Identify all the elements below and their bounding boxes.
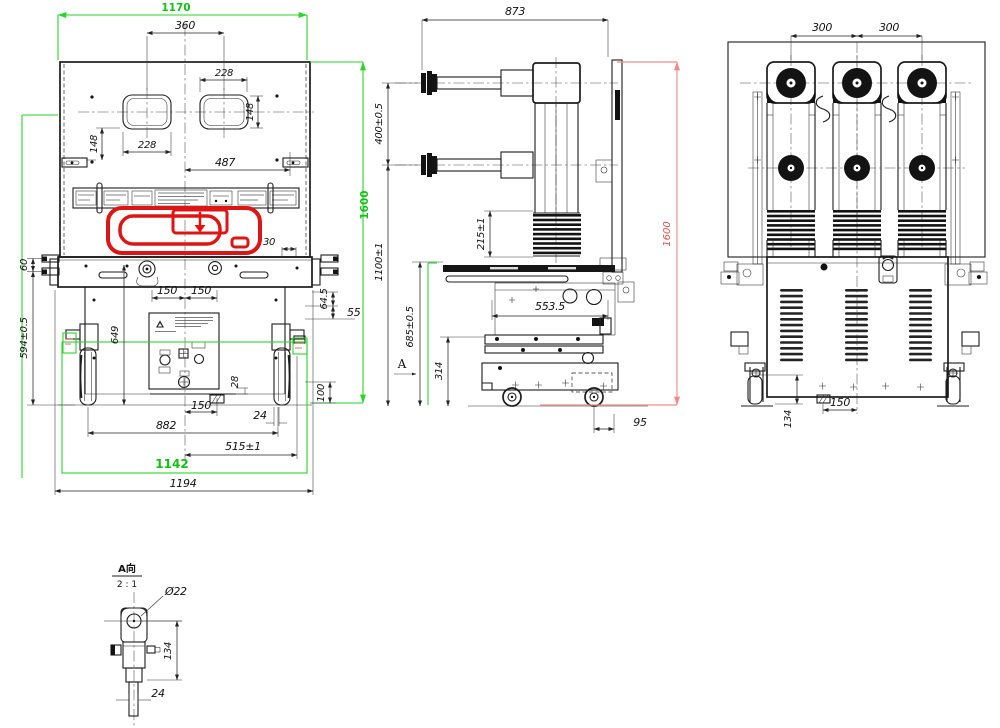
detail-title: A向 [118, 562, 136, 575]
dim-front-228-top: 228 [215, 68, 233, 79]
panel-handle-left [62, 158, 87, 167]
view-a-arrow-label: A [397, 357, 407, 371]
dim-front-150-right: 150 [191, 284, 211, 297]
dim-front-148-left: 148 [89, 135, 100, 153]
detail-view-a: A向 2 : 1 Ø22 134 24 [104, 562, 187, 726]
rear-bracket-upper-left [721, 262, 763, 285]
dim-front-360: 360 [175, 19, 195, 32]
panel-handle-right [283, 158, 308, 167]
side-view: 873 400±0.5 1100±1 215±1 685±0.5 553.5 3… [374, 5, 677, 433]
dim-side-553-5: 553.5 [535, 300, 565, 313]
side-dimensions: 873 400±0.5 1100±1 215±1 685±0.5 553.5 3… [374, 5, 677, 433]
dim-front-150-left: 150 [157, 284, 177, 297]
dim-front-150-bottom: 150 [191, 399, 211, 412]
front-wheel-right [272, 324, 305, 405]
dim-side-1600-red: 1600 [662, 221, 673, 246]
dim-front-64-5: 64.5 [319, 288, 330, 309]
rear-cabinet [767, 256, 948, 403]
dim-front-1194: 1194 [170, 477, 197, 490]
dim-rear-300-right: 300 [879, 21, 899, 34]
control-panel [149, 313, 219, 389]
rear-view: 300 300 150 134 [721, 21, 987, 428]
engineering-drawing-canvas: 1170 1600 1142 360 228 148 148 228 487 [0, 0, 1000, 728]
side-wheels [468, 388, 648, 406]
dim-side-1100: 1100±1 [374, 243, 385, 281]
open-button[interactable] [195, 355, 204, 364]
dim-detail-134: 134 [163, 642, 174, 660]
dim-front-148-right: 148 [245, 103, 256, 121]
indicator-label [192, 342, 205, 348]
dim-side-400: 400±0.5 [374, 103, 385, 144]
rear-wheel-right [937, 332, 979, 406]
rear-bracket-upper-right [945, 262, 987, 285]
dim-front-594: 594±0.5 [19, 317, 30, 358]
dim-detail-24: 24 [151, 687, 165, 700]
dim-front-1600-green: 1600 [359, 190, 371, 219]
hole-leader-line [141, 596, 163, 616]
chassis-slot-left [99, 272, 127, 278]
dim-front-228-bottom: 228 [138, 140, 156, 151]
close-button[interactable] [160, 355, 170, 365]
red-highlight-interlock-slot [108, 208, 260, 253]
dim-front-487: 487 [215, 156, 235, 169]
dim-front-515: 515±1 [225, 440, 261, 453]
chassis-port [209, 262, 222, 275]
inspection-window-left [123, 88, 171, 140]
red-down-arrow-head-icon [195, 225, 206, 233]
dim-front-30: 30 [263, 237, 275, 248]
pole-column-side [533, 103, 581, 256]
dim-side-95: 95 [633, 416, 647, 429]
dim-side-873: 873 [505, 5, 525, 18]
dim-front-1170: 1170 [161, 2, 190, 14]
drawing-svg: 1170 1600 1142 360 228 148 148 228 487 [0, 0, 1000, 728]
dim-rear-150: 150 [830, 396, 850, 409]
dim-front-28: 28 [230, 376, 241, 388]
inspection-window-right [200, 88, 248, 140]
dim-front-100: 100 [316, 384, 327, 402]
phase-strap-right [882, 96, 896, 122]
dim-front-55: 55 [347, 306, 361, 319]
detail-scale: 2 : 1 [117, 580, 137, 590]
dim-detail-dia22: Ø22 [164, 585, 187, 598]
dim-front-882: 882 [156, 419, 176, 432]
dim-front-1142: 1142 [155, 457, 188, 471]
dim-front-60: 60 [19, 259, 30, 271]
dim-side-215: 215±1 [476, 218, 487, 250]
dim-front-649: 649 [110, 326, 121, 344]
dim-front-24: 24 [253, 409, 267, 422]
dim-rear-134: 134 [783, 410, 794, 428]
dim-side-685: 685±0.5 [405, 306, 416, 347]
front-wheel-left [66, 324, 98, 405]
side-chassis [443, 265, 618, 392]
chassis-slot-right [240, 272, 268, 278]
dim-rear-300-left: 300 [812, 21, 832, 34]
phase-strap-left [816, 96, 830, 122]
front-view: 1170 1600 1142 360 228 148 148 228 487 [19, 2, 371, 495]
dim-side-314: 314 [434, 362, 445, 380]
chassis-band [42, 255, 338, 287]
